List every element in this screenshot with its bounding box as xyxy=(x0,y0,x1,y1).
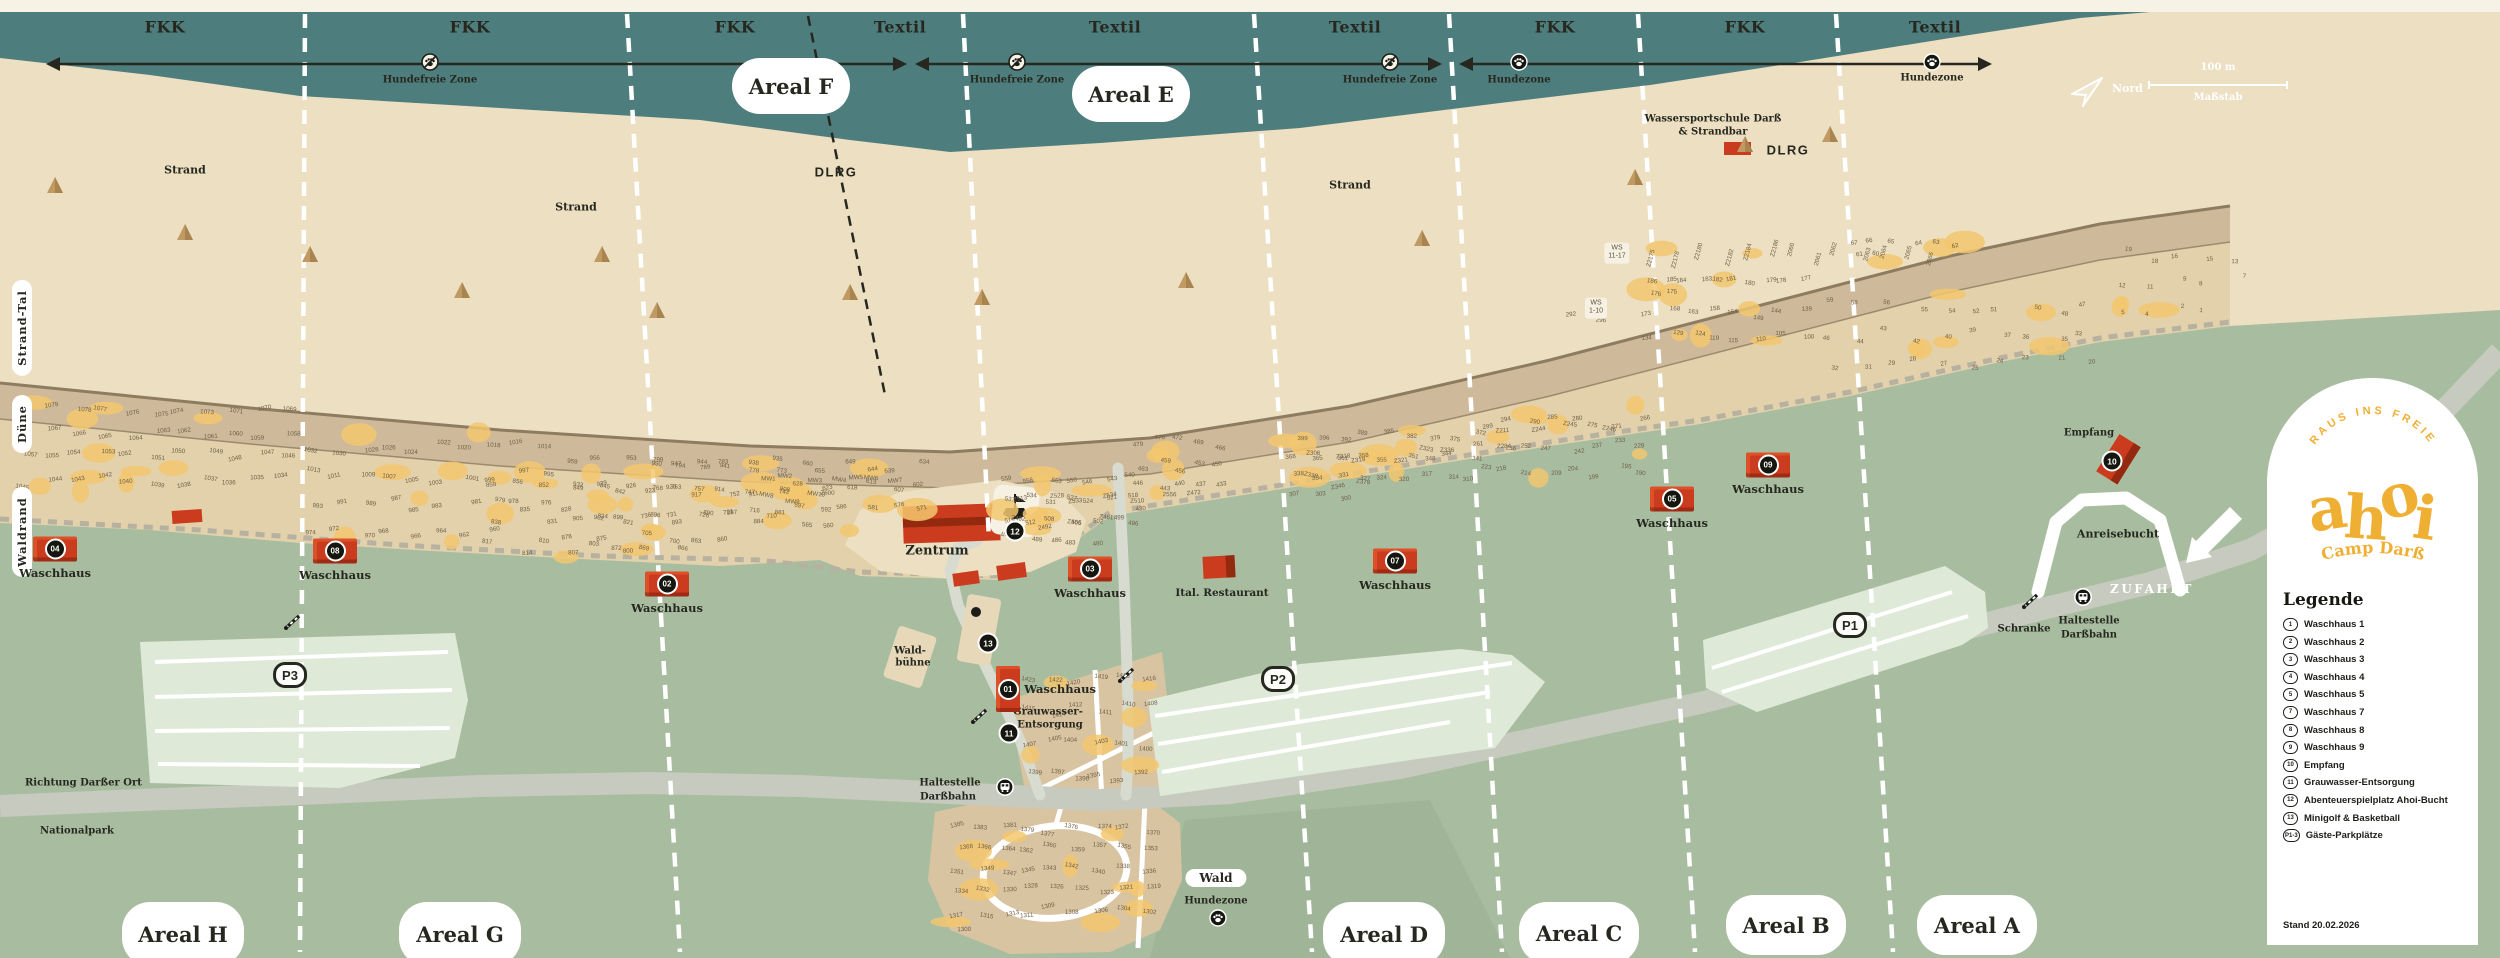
map-label-dlrg: DLRG xyxy=(1767,143,1810,158)
map-label-grauwasser-: Grauwasser- xyxy=(1013,707,1083,718)
legend-mark-13: 13 xyxy=(2283,812,2298,825)
map-date: Stand 20.02.2026 xyxy=(2283,920,2360,931)
parking-badge-p2: P2 xyxy=(1261,666,1295,692)
barrier-icon xyxy=(282,612,304,636)
poi-marker-11: 11 xyxy=(999,723,1020,744)
area-badge-areal-b: Areal B xyxy=(1726,895,1846,955)
map-label-&-strandbar: & Strandbar xyxy=(1678,127,1747,138)
ws-box-1-10: WS1-10 xyxy=(1585,298,1607,319)
parking-badge-p3: P3 xyxy=(273,662,307,688)
legend-label: Waschhaus 4 xyxy=(2304,672,2364,683)
waschhaus-03-marker: 03 xyxy=(1068,557,1112,582)
scale-caption: Maßstab xyxy=(2194,92,2243,103)
bus-stop-icon xyxy=(2074,588,2093,611)
terrain-label-strand-tal: Strand-Tal xyxy=(12,280,32,376)
legend-label: Waschhaus 5 xyxy=(2304,689,2364,700)
map-label-hundefreie-zone: Hundefreie Zone xyxy=(383,75,478,86)
map-label-entsorgung: Entsorgung xyxy=(1017,720,1083,731)
waschhaus-04-label: Waschhaus xyxy=(19,566,91,580)
map-label-strand: Strand xyxy=(555,201,597,214)
legend-label: Waschhaus 8 xyxy=(2304,725,2364,736)
area-badge-areal-d: Areal D xyxy=(1323,902,1445,958)
legend-mark-3: 3 xyxy=(2283,653,2298,666)
logo-arc-text: RAUS INS FREIE xyxy=(2308,405,2439,447)
parking-badge-p1: P1 xyxy=(1833,612,1867,638)
map-label-richtung-darßer-ort: Richtung Darßer Ort xyxy=(25,778,142,789)
barrier-icon xyxy=(969,706,991,730)
area-badge-areal-g: Areal G xyxy=(399,902,521,958)
legend-title: Legende xyxy=(2283,590,2364,610)
camp-map: 1080107910781077107610751074107310711070… xyxy=(0,0,2500,958)
legend-label: Empfang xyxy=(2304,760,2345,771)
legend-label: Gäste-Parkplätze xyxy=(2306,830,2383,841)
map-label-darßbahn: Darßbahn xyxy=(2061,630,2117,641)
compass: Nord 100 m Maßstab xyxy=(2070,60,2310,110)
map-label-zufahrt: ZUFAHRT xyxy=(2110,582,2194,596)
map-label-empfang: Empfang xyxy=(2064,428,2114,439)
area-badge-areal-f: Areal F xyxy=(732,58,850,114)
legend-item-2: 2Waschhaus 2 xyxy=(2283,636,2470,649)
legend-mark-7: 7 xyxy=(2283,706,2298,719)
legend-mark-1: 1 xyxy=(2283,618,2298,631)
waschhaus-08-marker: 08 xyxy=(313,539,357,564)
map-label-strand: Strand xyxy=(164,164,206,177)
map-label-hundezone: Hundezone xyxy=(1487,75,1550,86)
zone-label-fkk-2: FKK xyxy=(715,18,756,37)
legend-label: Waschhaus 2 xyxy=(2304,637,2364,648)
map-label-hundefreie-zone: Hundefreie Zone xyxy=(970,75,1065,86)
legend-mark-9: 9 xyxy=(2283,741,2298,754)
legend-item-10: 11Grauwasser-Entsorgung xyxy=(2283,776,2470,789)
legend-label: Waschhaus 9 xyxy=(2304,742,2364,753)
legend-item-8: 9Waschhaus 9 xyxy=(2283,741,2470,754)
legend-item-1: 1Waschhaus 1 xyxy=(2283,618,2470,631)
zone-label-textil-4: Textil xyxy=(1089,18,1141,37)
zone-label-fkk-7: FKK xyxy=(1725,18,1766,37)
legend-item-3: 3Waschhaus 3 xyxy=(2283,653,2470,666)
svg-text:RAUS INS FREIE: RAUS INS FREIE xyxy=(2308,405,2439,447)
waschhaus-05-marker: 05 xyxy=(1650,487,1694,512)
map-label-ital-restaurant: Ital. Restaurant xyxy=(1175,587,1268,599)
map-label-hundezone: Hundezone xyxy=(1184,896,1247,907)
waschhaus-05-number: 05 xyxy=(1662,489,1683,510)
waschhaus-04-number: 04 xyxy=(45,539,66,560)
poi-marker-10: 10 xyxy=(2102,451,2123,472)
poi-marker-12: 12 xyxy=(1005,521,1026,542)
dog-zone-icon xyxy=(1923,53,1942,76)
map-label-wald-: Wald- xyxy=(894,646,926,657)
map-label-schranke: Schranke xyxy=(1998,624,2051,635)
north-label: Nord xyxy=(2112,82,2143,95)
waschhaus-02-number: 02 xyxy=(657,574,678,595)
map-label-zentrum: Zentrum xyxy=(905,544,968,559)
legend-item-7: 8Waschhaus 8 xyxy=(2283,724,2470,737)
legend-label: Grauwasser-Entsorgung xyxy=(2304,777,2415,788)
waschhaus-03-label: Waschhaus xyxy=(1054,586,1126,600)
waschhaus-08-label: Waschhaus xyxy=(299,568,371,582)
legend-list: 1Waschhaus 12Waschhaus 23Waschhaus 34Was… xyxy=(2283,618,2470,842)
waschhaus-02-marker: 02 xyxy=(645,572,689,597)
map-label-dlrg: DLRG xyxy=(815,165,858,180)
map-label-darßbahn: Darßbahn xyxy=(920,792,976,803)
area-badge-areal-e: Areal E xyxy=(1072,66,1190,122)
legend-label: Waschhaus 7 xyxy=(2304,707,2364,718)
area-badge-areal-h: Areal H xyxy=(122,902,244,958)
legend-label: Minigolf & Basketball xyxy=(2304,813,2400,824)
legend-label: Waschhaus 1 xyxy=(2304,619,2364,630)
scale-label: 100 m xyxy=(2201,62,2236,73)
zone-label-fkk-6: FKK xyxy=(1535,18,1576,37)
legend-mark-12: 12 xyxy=(2283,794,2298,807)
waschhaus-03-number: 03 xyxy=(1080,559,1101,580)
map-label-haltestelle: Haltestelle xyxy=(919,778,980,789)
waschhaus-02-label: Waschhaus xyxy=(631,601,703,615)
waschhaus-01-label: Waschhaus xyxy=(1024,682,1096,696)
scale-bar xyxy=(2148,84,2288,86)
map-label-haltestelle: Haltestelle xyxy=(2058,616,2119,627)
dog-zone-icon xyxy=(1510,53,1529,76)
waschhaus-01-number: 01 xyxy=(998,679,1019,700)
map-label-hundefreie-zone: Hundefreie Zone xyxy=(1343,75,1438,86)
legend-item-4: 4Waschhaus 4 xyxy=(2283,671,2470,684)
map-label-anreisebucht: Anreisebucht xyxy=(2077,528,2159,541)
legend-mark-8: 8 xyxy=(2283,724,2298,737)
ws-box-11-17: WS11-17 xyxy=(1604,243,1629,264)
zone-label-textil-8: Textil xyxy=(1909,18,1961,37)
waschhaus-04-marker: 04 xyxy=(33,537,77,562)
legend-item-13: P1-3Gäste-Parkplätze xyxy=(2283,829,2470,842)
no-dog-zone-icon xyxy=(1008,53,1027,76)
legend-item-6: 7Waschhaus 7 xyxy=(2283,706,2470,719)
barrier-icon xyxy=(1116,665,1138,689)
zone-label-fkk-1: FKK xyxy=(450,18,491,37)
zone-label-textil-3: Textil xyxy=(874,18,926,37)
legend-mark-11: 11 xyxy=(2283,776,2298,789)
legend-mark-10: 10 xyxy=(2283,759,2298,772)
waschhaus-07-marker: 07 xyxy=(1373,549,1417,574)
legend-item-12: 13Minigolf & Basketball xyxy=(2283,812,2470,825)
area-badge-areal-a: Areal A xyxy=(1917,895,2037,955)
waschhaus-05-label: Waschhaus xyxy=(1636,516,1708,530)
svg-text:Camp Darß: Camp Darß xyxy=(2319,538,2427,564)
map-label-wassersportschule-darß: Wassersportschule Darß xyxy=(1645,114,1782,125)
area-badge-areal-c: Areal C xyxy=(1519,902,1639,958)
waschhaus-09-marker: 09 xyxy=(1746,453,1790,478)
zone-label-fkk-0: FKK xyxy=(145,18,186,37)
legend-label: Waschhaus 3 xyxy=(2304,654,2364,665)
waschhaus-07-number: 07 xyxy=(1385,551,1406,572)
no-dog-zone-icon xyxy=(421,53,440,76)
map-label-strand: Strand xyxy=(1329,179,1371,192)
logo: RAUS INS FREIE a h o i Camp Darß xyxy=(2267,378,2478,583)
legend-item-9: 10Empfang xyxy=(2283,759,2470,772)
zone-label-textil-5: Textil xyxy=(1329,18,1381,37)
waschhaus-08-number: 08 xyxy=(325,541,346,562)
legend-label: Abenteuerspielplatz Ahoi-Bucht xyxy=(2304,795,2448,806)
terrain-label-d-ne: Düne xyxy=(12,395,32,453)
map-label-bühne: bühne xyxy=(895,658,930,669)
poi-marker-13: 13 xyxy=(978,633,999,654)
legend-mark-2: 2 xyxy=(2283,636,2298,649)
legend-item-5: 5Waschhaus 5 xyxy=(2283,688,2470,701)
waschhaus-07-label: Waschhaus xyxy=(1359,578,1431,592)
legend-item-11: 12Abenteuerspielplatz Ahoi-Bucht xyxy=(2283,794,2470,807)
no-dog-zone-icon xyxy=(1381,53,1400,76)
terrain-label-waldrand: Waldrand xyxy=(12,487,32,577)
legend-panel: RAUS INS FREIE a h o i Camp Darß Legende… xyxy=(2267,378,2478,945)
legend-mark-4: 4 xyxy=(2283,671,2298,684)
map-label-nationalpark: Nationalpark xyxy=(40,826,114,837)
waschhaus-09-number: 09 xyxy=(1758,455,1779,476)
legend-mark-P1-3: P1-3 xyxy=(2283,829,2300,842)
legend-mark-5: 5 xyxy=(2283,688,2298,701)
waschhaus-09-label: Waschhaus xyxy=(1732,482,1804,496)
dog-zone-icon xyxy=(1209,909,1227,931)
bus-stop-icon xyxy=(996,778,1015,801)
waschhaus-01-marker: 01 xyxy=(996,666,1020,712)
logo-subtitle: Camp Darß xyxy=(2319,538,2427,564)
barrier-icon xyxy=(2020,591,2042,615)
wald-zone-pill: Wald xyxy=(1185,869,1246,887)
